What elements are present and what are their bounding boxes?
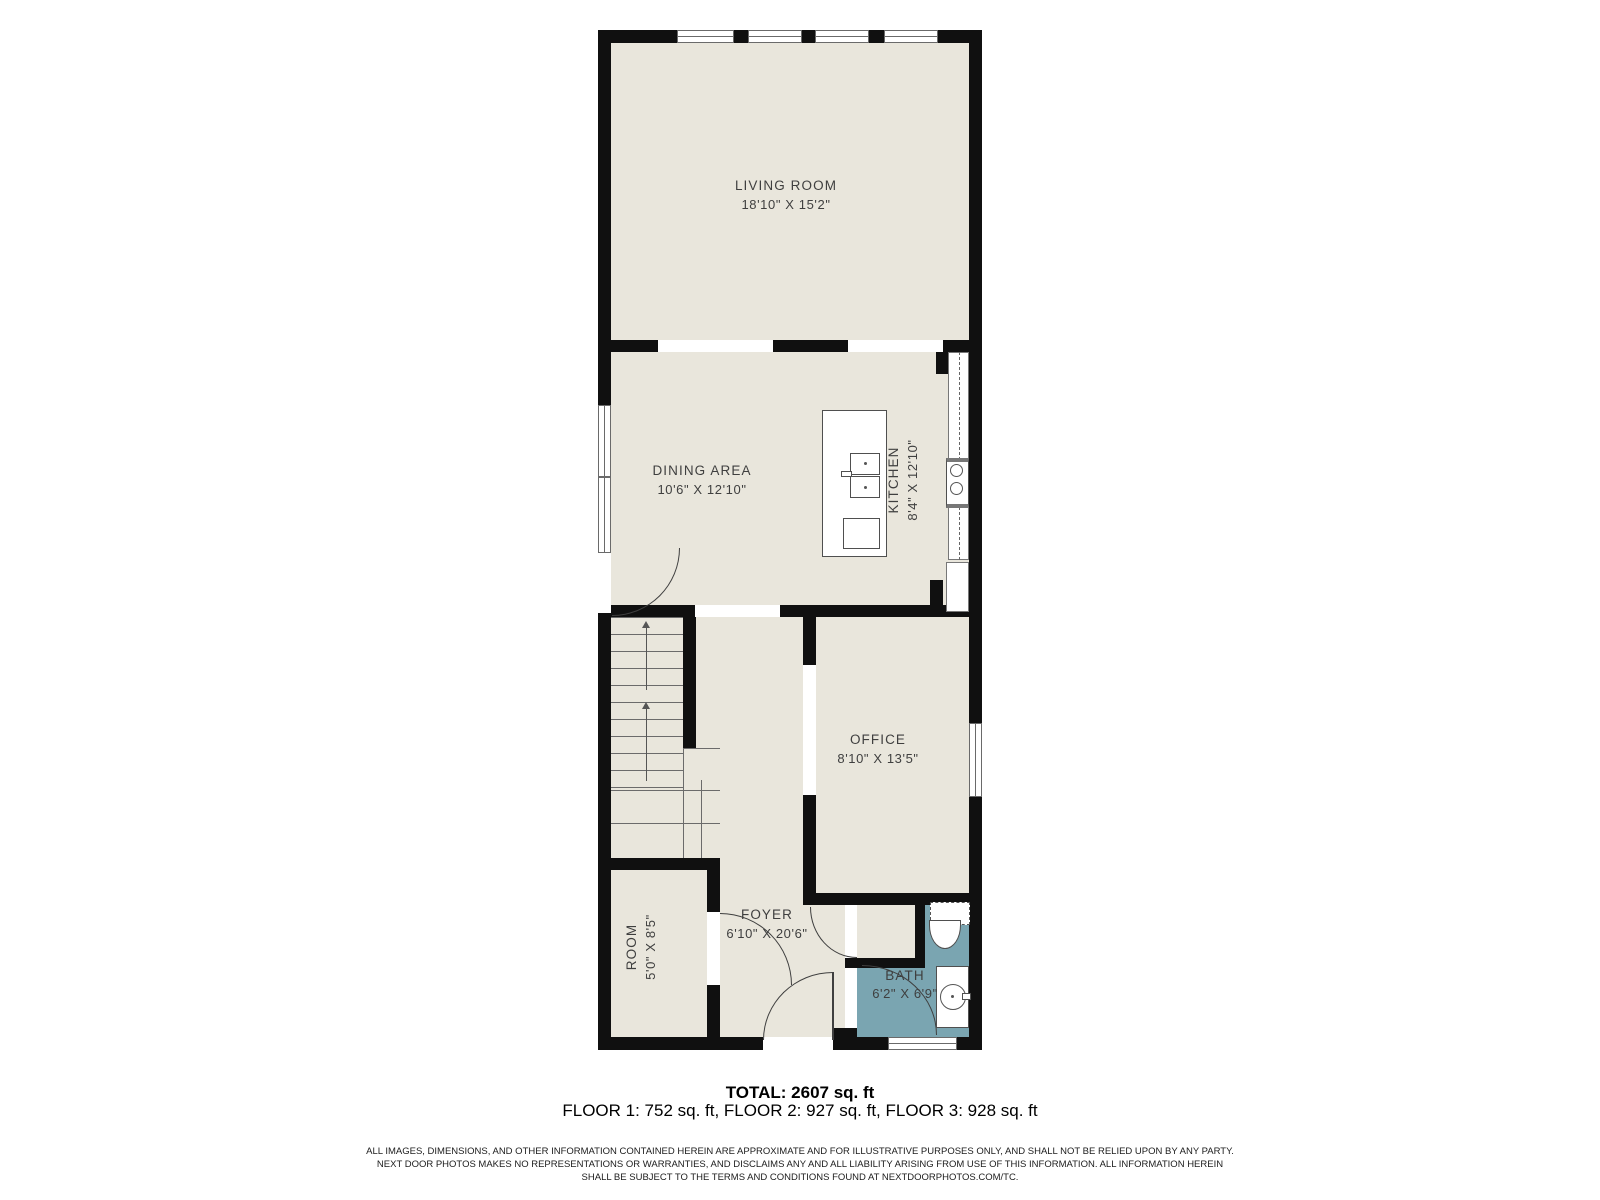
label-living-room: LIVING ROOM 18'10" X 15'2" (636, 176, 936, 214)
stair-step-edge (683, 748, 720, 749)
disclaimer-line-1: ALL IMAGES, DIMENSIONS, AND OTHER INFORM… (0, 1145, 1600, 1159)
label-dining-area: DINING AREA 10'6" X 12'10" (552, 461, 852, 499)
opening-living-dining-left (658, 340, 773, 352)
label-foyer: FOYER 6'10" X 20'6" (617, 905, 917, 943)
window-living-1 (677, 30, 734, 43)
foyer-name: FOYER (617, 905, 917, 924)
dining-area-dims: 10'6" X 12'10" (552, 480, 852, 499)
label-bath: BATH 6'2" X 6'9" (755, 967, 1055, 1003)
opening-living-dining-right (848, 340, 943, 352)
stove-burner-1 (950, 464, 963, 477)
wall-office-left-top (803, 617, 816, 665)
stair-arrow-2-shaft (646, 709, 647, 781)
office-name: OFFICE (728, 730, 1028, 749)
wall-stair-right (683, 617, 696, 748)
stair-landing-line-1 (611, 790, 720, 791)
label-office: OFFICE 8'10" X 13'5" (728, 730, 1028, 768)
kitchen-dishwasher (843, 518, 880, 549)
bath-name: BATH (755, 967, 1055, 985)
sink-drain-bottom (864, 486, 867, 489)
wall-room-right-top (707, 858, 720, 912)
stair-arrow-1-shaft (646, 628, 647, 690)
label-room: ROOM 5'0" X 8'5" (622, 882, 660, 1012)
window-living-2 (748, 30, 802, 43)
floor-areas-text: FLOOR 1: 752 sq. ft, FLOOR 2: 927 sq. ft… (0, 1101, 1600, 1121)
door-gap-dining-side (598, 548, 611, 613)
sink-drain-top (864, 462, 867, 465)
stair-landing-line-2 (611, 823, 720, 824)
kitchen-name: KITCHEN (884, 405, 903, 555)
stair-landing-div-1 (683, 748, 684, 858)
office-dims: 8'10" X 13'5" (728, 749, 1028, 768)
room-dims: 5'0" X 8'5" (641, 882, 660, 1012)
wall-living-dining-b (773, 340, 848, 352)
stair-landing-div-2 (701, 780, 702, 858)
label-kitchen: KITCHEN 8'4" X 12'10" (884, 405, 922, 555)
room-name: ROOM (622, 882, 641, 1012)
dining-area-name: DINING AREA (552, 461, 852, 480)
wall-room-right-bottom (707, 985, 720, 1037)
living-room-name: LIVING ROOM (636, 176, 936, 195)
wall-living-dining-c (943, 340, 969, 352)
stair-up-arrow-1 (642, 621, 650, 628)
window-living-4 (884, 30, 938, 43)
floor-plan: LIVING ROOM 18'10" X 15'2" DINING AREA 1… (0, 0, 1600, 1200)
wall-office-left-bottom (803, 795, 816, 905)
wall-kitchen-stub-top (936, 352, 948, 374)
disclaimer-line-2: NEXT DOOR PHOTOS MAKES NO REPRESENTATION… (0, 1158, 1600, 1172)
bath-dims: 6'2" X 6'9" (755, 985, 1055, 1003)
foyer-dims: 6'10" X 20'6" (617, 924, 917, 943)
kitchen-fridge (946, 562, 969, 612)
wall-foyer-bath-top (845, 893, 857, 905)
wall-kitchen-stub-bottom (930, 580, 943, 617)
kitchen-dims: 8'4" X 12'10" (903, 405, 922, 555)
disclaimer-line-3: SHALL BE SUBJECT TO THE TERMS AND CONDIT… (0, 1171, 1600, 1185)
total-area-text: TOTAL: 2607 sq. ft (0, 1083, 1600, 1103)
living-room-dims: 18'10" X 15'2" (636, 195, 936, 214)
stove-burner-2 (950, 482, 963, 495)
upper-cabinet-dashed-line (959, 352, 960, 560)
wall-room-top (598, 858, 720, 870)
wall-foyer-bath-bottom (833, 1028, 857, 1050)
opening-dining-hall (695, 605, 780, 617)
stair-up-arrow-2 (642, 702, 650, 709)
wall-living-dining-a (611, 340, 658, 352)
window-living-3 (815, 30, 869, 43)
outer-wall-right (969, 30, 982, 1050)
window-bath (888, 1037, 957, 1050)
